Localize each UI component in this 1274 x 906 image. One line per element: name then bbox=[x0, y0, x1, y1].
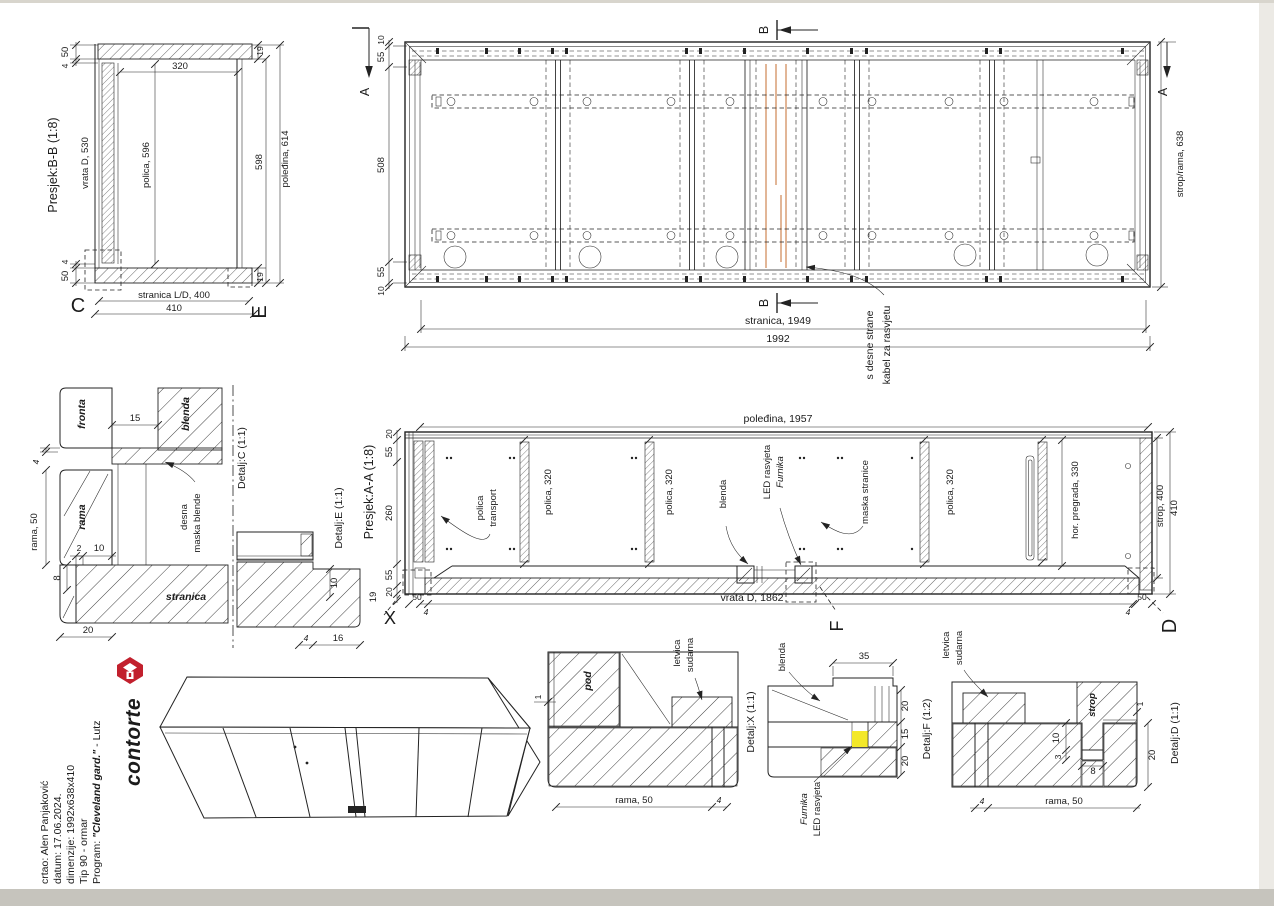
dd-label-strop: strop bbox=[1087, 693, 1098, 717]
aa-dim-strop400: strop, 400 bbox=[1155, 485, 1166, 527]
bb-dim-19-top: 19 bbox=[255, 46, 265, 56]
aa-dim-20-bot: 20 bbox=[384, 587, 394, 597]
aa-dim-vrata: vrata D, 1862 bbox=[720, 592, 783, 604]
aa-label-blenda: blenda bbox=[718, 479, 729, 508]
paper-edge-right bbox=[1259, 3, 1274, 889]
footer-crtao: crtao: Alen Panjaković bbox=[39, 781, 51, 884]
df-title: Detalj:F (1:2) bbox=[921, 699, 933, 760]
bb-title: Presjek:B-B (1:8) bbox=[46, 117, 60, 212]
marker-a-left-label: A bbox=[358, 87, 372, 96]
aa-label-polica320-1: polica, 320 bbox=[543, 469, 554, 515]
dc-label-stranica: stranica bbox=[166, 591, 206, 603]
de-dim-4: 4 bbox=[304, 633, 309, 643]
footer-dimenzije: dimenzije: 1992x638x410 bbox=[65, 765, 77, 884]
dd-dim-1: 1 bbox=[1135, 701, 1145, 706]
bb-dim-50-top: 50 bbox=[60, 47, 71, 58]
df-dim-20b: 20 bbox=[900, 756, 911, 767]
dd-dim-3: 3 bbox=[1053, 754, 1063, 759]
marker-b-top-label: B bbox=[757, 26, 771, 34]
aa-label-maska: maska stranice bbox=[860, 460, 871, 524]
aa-dim-4-right: 4 bbox=[1126, 607, 1131, 617]
bb-marker-e: E bbox=[249, 305, 271, 318]
aa-marker-f: F bbox=[827, 621, 847, 632]
cable-note-line1: kabel za rasvjetu bbox=[881, 305, 893, 384]
door-handle bbox=[348, 806, 366, 813]
bb-dim-4-bot: 4 bbox=[60, 259, 70, 264]
dd-title: Detalj:D (1:1) bbox=[1169, 702, 1181, 764]
aa-dim-55-bot: 55 bbox=[384, 570, 395, 581]
dd-label-sudarna: sudarna bbox=[954, 630, 965, 665]
dc-dim-4: 4 bbox=[31, 459, 41, 464]
de-dim-10: 10 bbox=[329, 578, 340, 589]
dx-dim-4: 4 bbox=[717, 795, 722, 805]
dx-dim-rama50: rama, 50 bbox=[615, 795, 653, 806]
bb-dim-19-bot: 19 bbox=[255, 272, 265, 282]
aa-label-furnika: Furnika bbox=[775, 456, 786, 488]
aa-dim-55-top: 55 bbox=[384, 447, 395, 458]
bb-label-polica: polica, 596 bbox=[141, 142, 152, 188]
dx-label-letvica: letvica bbox=[672, 639, 683, 667]
aa-label-polica320-3: polica, 320 bbox=[945, 469, 956, 515]
dc-label-rama: rama bbox=[76, 504, 88, 529]
footer-tip: Tip 90 - ormar bbox=[78, 818, 90, 884]
dc-label-fronta: fronta bbox=[76, 399, 88, 429]
bb-label-vrata: vrata D, 530 bbox=[80, 137, 91, 189]
aa-label-pregrada: hor. pregrada, 330 bbox=[1070, 461, 1081, 539]
aa-dim-260: 260 bbox=[384, 505, 395, 521]
plan-dim-1992: 1992 bbox=[766, 333, 790, 345]
dd-dim-20: 20 bbox=[1147, 750, 1158, 761]
df-label-led: LED rasvjeta bbox=[812, 781, 823, 836]
aa-dim-poledina: poleđina, 1957 bbox=[744, 413, 813, 425]
dd-dim-8: 8 bbox=[1090, 766, 1095, 777]
aa-dim-50-right: 50 bbox=[1137, 592, 1147, 602]
dc-dim-20: 20 bbox=[83, 625, 94, 636]
plan-dim-10-bot: 10 bbox=[376, 286, 386, 296]
dx-label-sudarna: sudarna bbox=[685, 637, 696, 672]
bb-marker-c: C bbox=[71, 295, 85, 317]
bb-dim-4-top: 4 bbox=[60, 63, 70, 68]
drawing-sheet: 320 50 4 4 50 vrata D, 530 polica, 596 1… bbox=[0, 0, 1274, 906]
dc-dim-2: 2 bbox=[77, 543, 82, 553]
dx-label-pod: pod bbox=[582, 671, 594, 692]
dd-dim-4: 4 bbox=[980, 796, 985, 806]
de-title: Detalj:E (1:1) bbox=[333, 487, 345, 548]
aa-label-polica320-2: polica, 320 bbox=[664, 469, 675, 515]
dc-dim-8: 8 bbox=[52, 575, 63, 580]
df-dim-35: 35 bbox=[859, 651, 870, 662]
dc-dim-rama50: rama, 50 bbox=[29, 513, 40, 551]
plan-dim-stranica-1949: stranica, 1949 bbox=[745, 315, 811, 327]
dd-dim-10: 10 bbox=[1051, 733, 1062, 744]
aa-label-transport: transport bbox=[488, 489, 499, 527]
bb-dim-598: 598 bbox=[254, 154, 265, 170]
cabinet-3d-view bbox=[160, 677, 540, 818]
dc-label-maska-2: desna bbox=[179, 503, 190, 530]
contorte-logo-text: contorte bbox=[122, 698, 145, 786]
dc-dim-10: 10 bbox=[94, 543, 105, 554]
plan-dim-508: 508 bbox=[376, 157, 387, 173]
cad-drawing: 320 50 4 4 50 vrata D, 530 polica, 596 1… bbox=[0, 0, 1274, 906]
dx-title: Detalj:X (1:1) bbox=[745, 691, 757, 752]
dd-label-letvica: letvica bbox=[941, 631, 952, 659]
dc-title: Detalj:C (1:1) bbox=[236, 427, 248, 489]
aa-label-transport-2: polica bbox=[475, 495, 486, 521]
dc-label-maska-1: maska blende bbox=[192, 493, 203, 552]
bb-dim-320: 320 bbox=[172, 61, 188, 72]
aa-dim-4-left: 4 bbox=[424, 607, 429, 617]
bb-label-stranica: stranica L/D, 400 bbox=[138, 290, 210, 301]
plan-dim-10-top: 10 bbox=[376, 35, 386, 45]
df-dim-15: 15 bbox=[900, 729, 911, 740]
bb-dim-410: 410 bbox=[166, 303, 182, 314]
df-label-furnika: Furnika bbox=[799, 793, 810, 825]
bb-dim-50-bot: 50 bbox=[60, 271, 71, 282]
aa-dim-410: 410 bbox=[1169, 500, 1180, 516]
bb-label-poledina: poleđina, 614 bbox=[280, 130, 291, 187]
footer-datum: datum: 17.06.2024. bbox=[52, 794, 64, 885]
df-dim-20a: 20 bbox=[900, 701, 911, 712]
aa-dim-20-top: 20 bbox=[384, 429, 394, 439]
cable-note-line2: s desne strane bbox=[864, 310, 876, 379]
aa-label-led: LED rasvjeta bbox=[762, 444, 773, 499]
paper-edge-bottom bbox=[0, 889, 1274, 906]
aa-title: Presjek:A-A (1:8) bbox=[362, 445, 376, 539]
aa-dim-19: 19 bbox=[368, 592, 379, 603]
dc-dim-15: 15 bbox=[130, 413, 141, 424]
de-dim-16: 16 bbox=[333, 633, 344, 644]
plan-dim-55-bot: 55 bbox=[376, 267, 387, 278]
dx-dim-1: 1 bbox=[533, 694, 543, 699]
aa-marker-d: D bbox=[1159, 619, 1181, 633]
df-label-blenda: blenda bbox=[777, 642, 788, 671]
aa-marker-x: X bbox=[384, 608, 396, 628]
marker-b-bottom-label: B bbox=[757, 299, 771, 307]
aa-dim-50-left: 50 bbox=[412, 592, 422, 602]
footer-program: Program: "Cleveland gard." - Lutz bbox=[91, 721, 103, 884]
dd-dim-rama50: rama, 50 bbox=[1045, 796, 1083, 807]
led-light-square bbox=[852, 731, 868, 747]
dc-label-blenda: blenda bbox=[180, 397, 192, 431]
plan-dim-55-top: 55 bbox=[376, 52, 387, 63]
plan-label-strop-rama: strop/rama, 638 bbox=[1175, 131, 1186, 198]
marker-a-right-label: A bbox=[1156, 87, 1170, 96]
